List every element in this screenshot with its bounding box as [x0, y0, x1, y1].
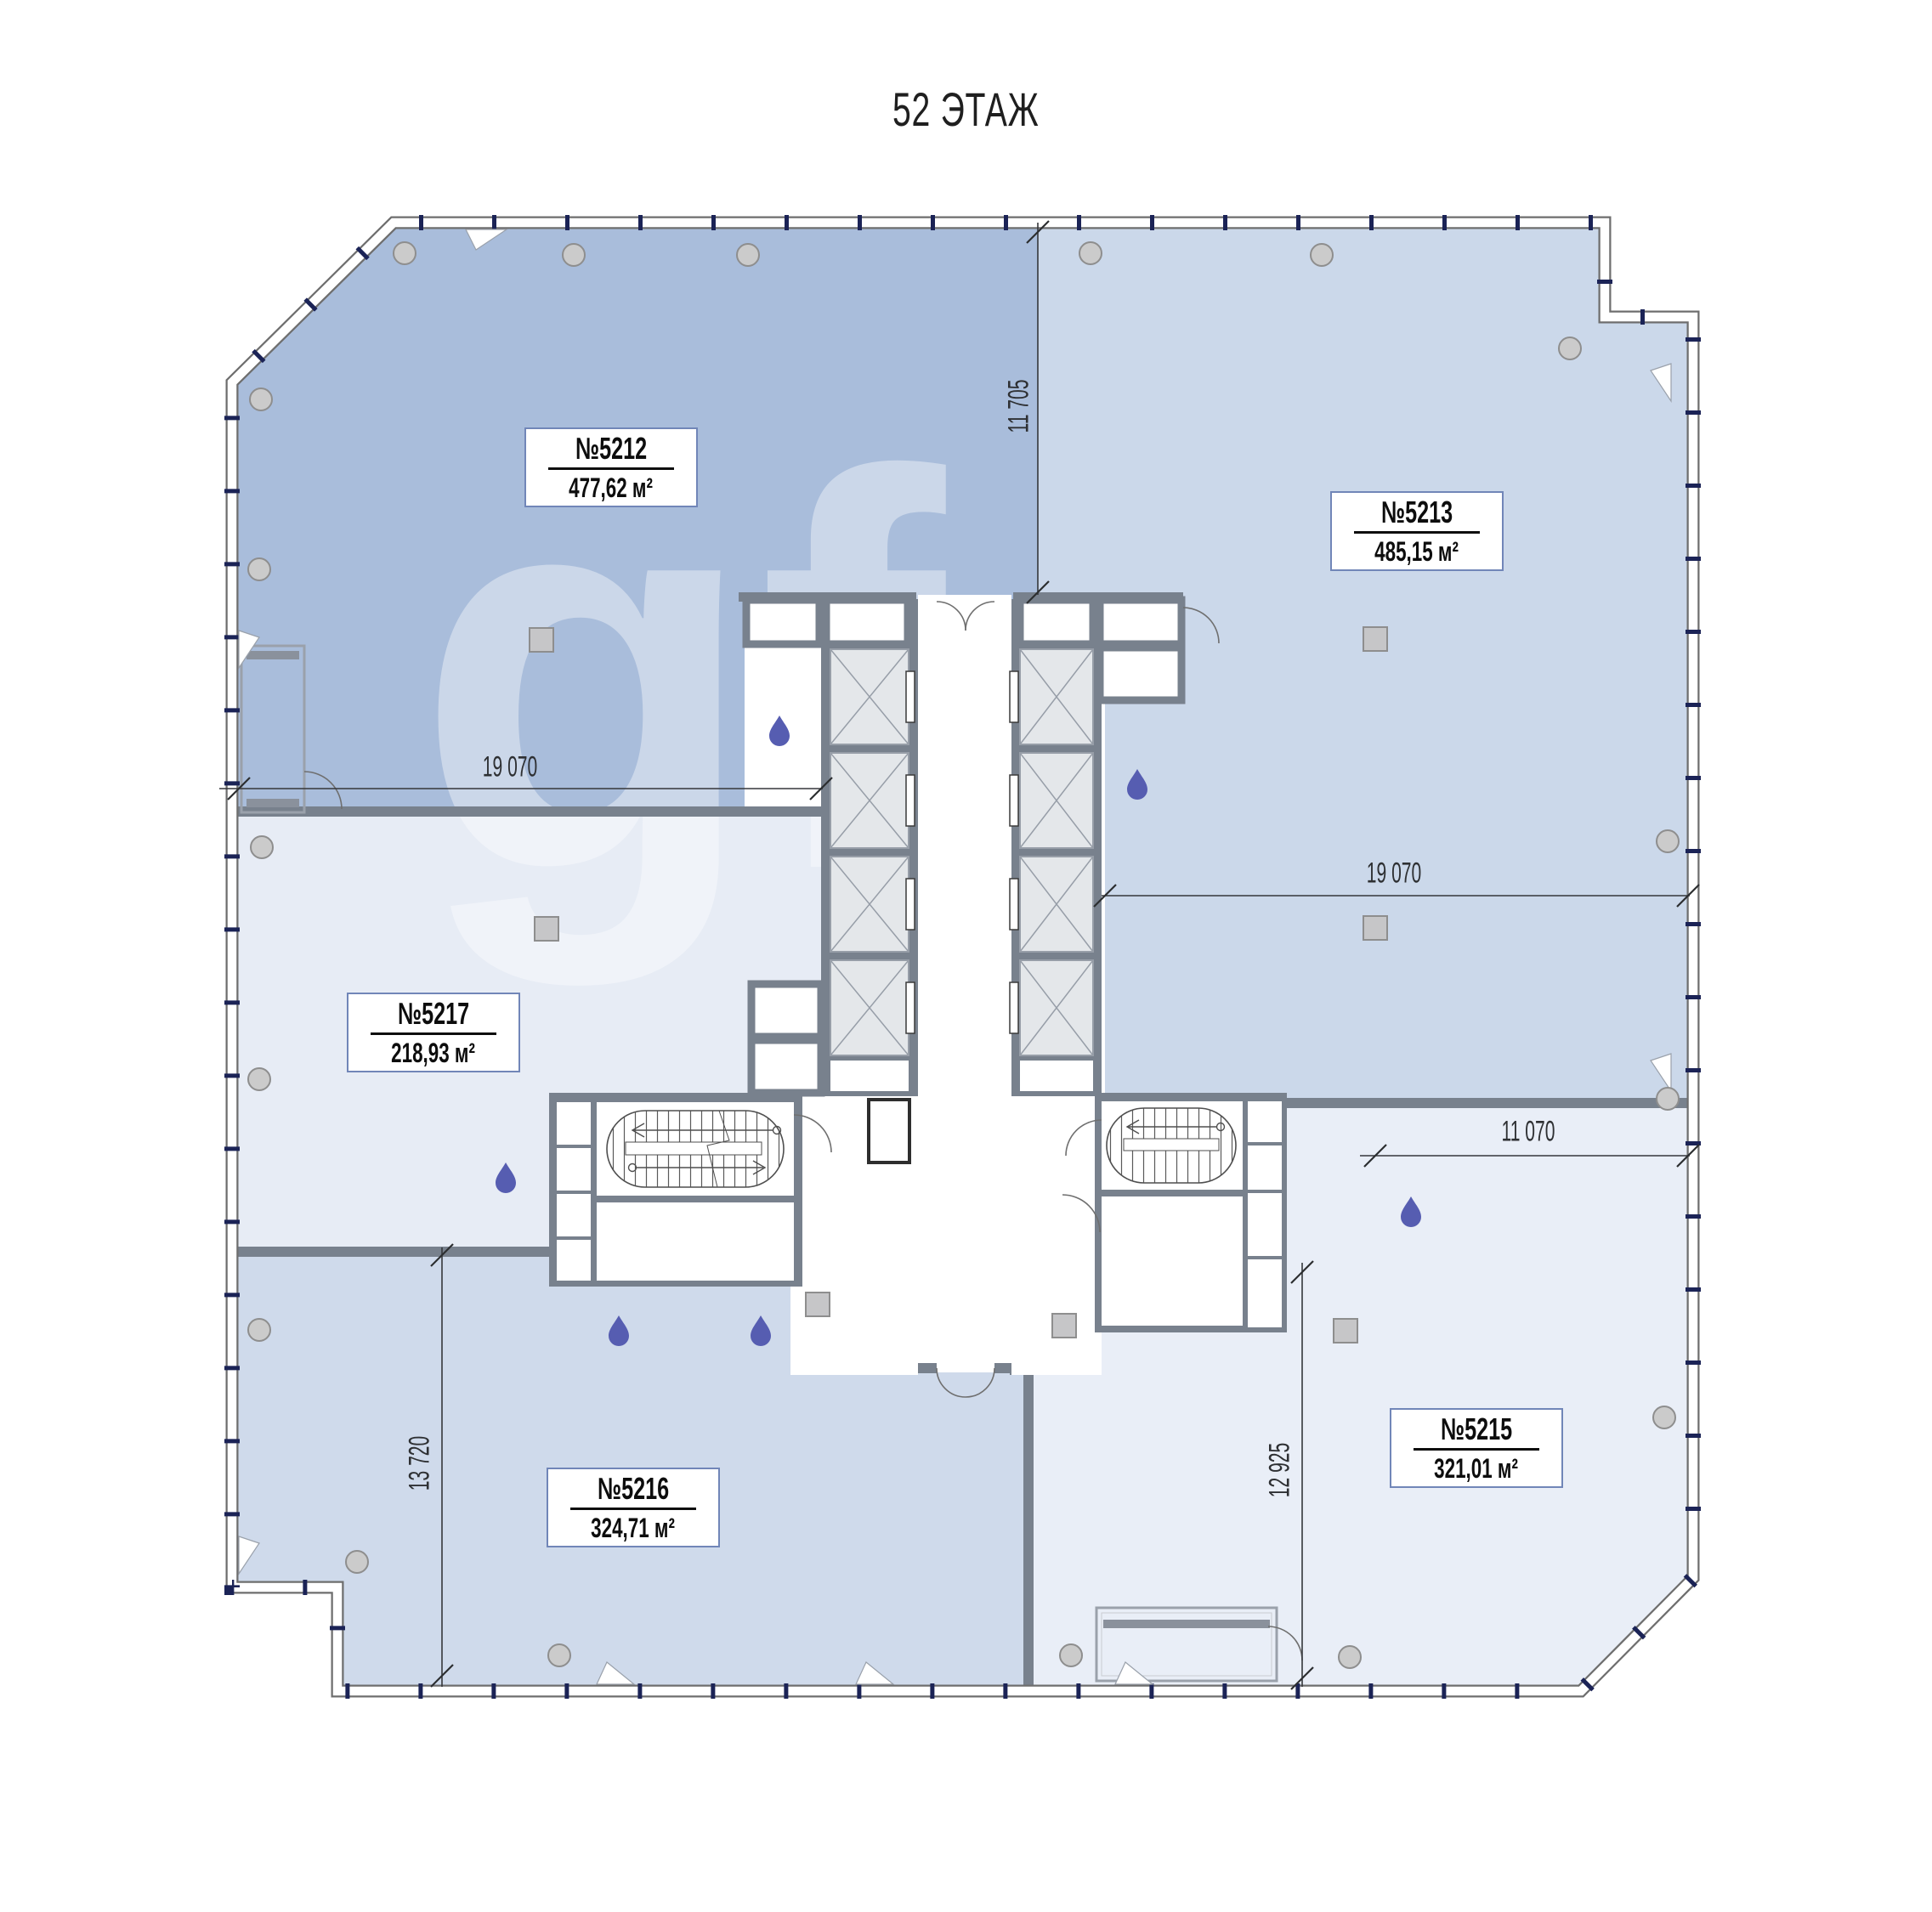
elevator-bank-right — [1011, 599, 1102, 1096]
column-square — [806, 1293, 830, 1316]
unit-number: №5215 — [1441, 1413, 1512, 1445]
dimension-top-vertical: 11 705 — [1003, 380, 1036, 433]
column-circle — [548, 1644, 570, 1666]
staircase-left — [607, 1111, 784, 1187]
elevator-bank-left — [821, 599, 918, 1096]
column-square — [535, 917, 558, 941]
core-side-rooms — [751, 984, 821, 1093]
column-circle — [346, 1551, 368, 1573]
column-square — [1334, 1319, 1357, 1343]
column-circle — [250, 388, 272, 410]
column-circle — [1559, 337, 1581, 359]
unit-area: 218,93 м² — [392, 1038, 476, 1067]
dimension-left-horizontal: 19 070 — [483, 751, 537, 784]
dimension-right-vertical: 12 925 — [1264, 1443, 1297, 1497]
unit-number: №5213 — [1381, 496, 1453, 529]
unit-number: №5212 — [575, 433, 647, 465]
label-divider — [1414, 1448, 1539, 1451]
unit-label-5212[interactable]: №5212 477,62 м² — [524, 427, 698, 507]
column-circle — [248, 1319, 270, 1341]
column-circle — [1311, 244, 1333, 266]
label-divider — [1354, 531, 1480, 534]
stair-block-right — [1095, 1093, 1287, 1332]
label-divider — [371, 1032, 496, 1035]
floor-plan-page: gf — [0, 0, 1932, 1912]
unit-area: 324,71 м² — [592, 1513, 676, 1542]
column-circle — [1060, 1644, 1082, 1666]
column-circle — [248, 558, 270, 580]
dimension-right-horizontal: 19 070 — [1367, 857, 1421, 891]
column-circle — [1657, 1088, 1679, 1110]
stair-block-left — [549, 1093, 802, 1287]
column-circle — [394, 242, 416, 264]
column-circle — [1657, 830, 1679, 852]
unit-area: 321,01 м² — [1435, 1454, 1519, 1483]
lobby — [918, 595, 1011, 1372]
door-frame-room — [869, 1100, 909, 1162]
floor-plan-drawing: gf — [0, 0, 1932, 1912]
dimension-right-lower-horizontal: 11 070 — [1502, 1116, 1555, 1149]
staircase-right — [1107, 1108, 1236, 1183]
column-circle — [737, 244, 759, 266]
label-divider — [548, 467, 674, 470]
dimension-left-vertical: 13 720 — [404, 1436, 437, 1491]
unit-label-5215[interactable]: №5215 321,01 м² — [1390, 1408, 1563, 1488]
unit-label-5216[interactable]: №5216 324,71 м² — [547, 1468, 720, 1547]
column-circle — [563, 244, 585, 266]
label-divider — [570, 1508, 696, 1510]
column-square — [530, 628, 553, 652]
page-title: 52 ЭТАЖ — [0, 82, 1932, 137]
unit-area: 477,62 м² — [569, 473, 654, 502]
column-square — [1363, 916, 1387, 940]
column-circle — [1653, 1406, 1675, 1428]
column-circle — [1079, 242, 1102, 264]
unit-label-5213[interactable]: №5213 485,15 м² — [1330, 491, 1504, 571]
unit-number: №5217 — [398, 998, 469, 1030]
column-circle — [248, 1068, 270, 1090]
unit-label-5217[interactable]: №5217 218,93 м² — [347, 993, 520, 1072]
column-circle — [251, 836, 273, 858]
unit-number: №5216 — [598, 1473, 669, 1505]
column-square — [1363, 627, 1387, 651]
unit-area: 485,15 м² — [1375, 537, 1459, 566]
column-square — [1052, 1314, 1076, 1338]
column-circle — [1339, 1646, 1361, 1668]
